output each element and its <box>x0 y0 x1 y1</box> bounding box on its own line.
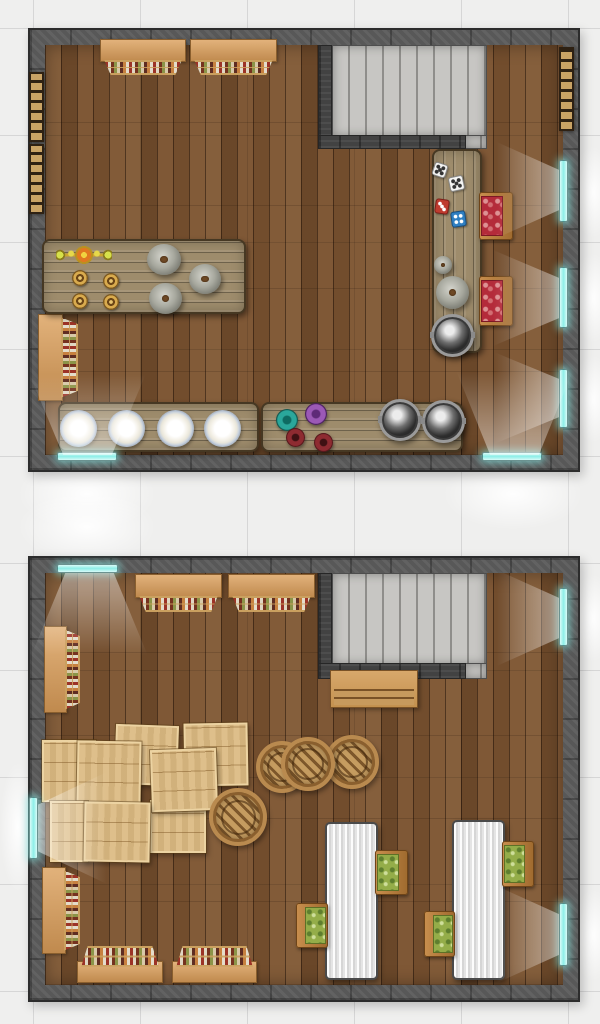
battlemap-canvas <box>0 0 600 1024</box>
cooking-pot <box>379 399 421 441</box>
stairwell-wall <box>318 135 466 149</box>
crate <box>150 748 218 812</box>
window <box>29 797 38 859</box>
chair-green-cushion <box>375 850 408 895</box>
chair-green-cushion <box>296 903 328 948</box>
goblet <box>103 273 119 289</box>
chair-green-cushion <box>424 911 455 957</box>
wall-ladder <box>559 47 574 131</box>
goblet <box>72 270 88 286</box>
staircase <box>332 573 487 665</box>
candelabra <box>56 246 112 264</box>
chair-green-cushion <box>502 841 534 887</box>
stone-dome <box>149 283 182 314</box>
maroon-bowl <box>286 428 305 447</box>
battlemap-page: { "meta": { "canvas_width": 600, "canvas… <box>0 0 600 1024</box>
hanging-shelf <box>190 39 277 75</box>
wall-shelf <box>172 946 257 983</box>
cooking-pot <box>422 400 465 443</box>
wall-shelf <box>42 867 80 954</box>
wall-shelf <box>77 946 163 983</box>
wall-ladder <box>29 144 44 214</box>
blue-die <box>450 210 467 228</box>
stone-dome <box>147 244 181 275</box>
purple-bowl <box>305 403 327 425</box>
wall-ladder <box>29 72 44 142</box>
red-die <box>434 198 450 215</box>
dining-table <box>325 822 378 980</box>
barrel <box>281 737 335 791</box>
window <box>559 903 568 966</box>
plate <box>204 410 241 447</box>
goblet <box>103 294 119 310</box>
goblet <box>72 293 88 309</box>
maroon-bowl <box>314 433 333 452</box>
stone-dome <box>189 264 221 294</box>
small-mortar <box>434 256 452 274</box>
hanging-shelf <box>135 574 222 612</box>
hanging-shelf <box>228 574 315 612</box>
window <box>559 160 568 222</box>
plate <box>157 410 194 447</box>
white-die <box>448 175 466 193</box>
barrel <box>209 788 267 846</box>
window <box>57 564 118 573</box>
window-glow <box>18 492 156 562</box>
staircase <box>332 45 487 137</box>
mortar <box>436 276 469 309</box>
stairwell-wall <box>318 45 332 149</box>
window <box>559 267 568 328</box>
hanging-shelf <box>100 39 186 75</box>
window <box>559 588 568 646</box>
bench <box>330 670 418 708</box>
